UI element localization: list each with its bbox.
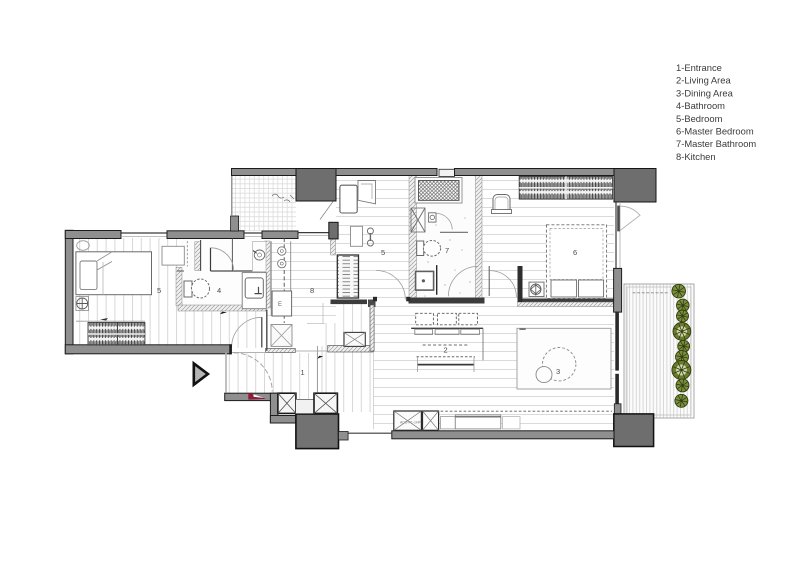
svg-text:2: 2 bbox=[444, 346, 448, 355]
svg-text:8-Kitchen: 8-Kitchen bbox=[676, 151, 716, 162]
svg-text:ACU-P1-1HP: ACU-P1-1HP bbox=[400, 421, 421, 425]
svg-text:5-Bedroom: 5-Bedroom bbox=[676, 113, 723, 124]
svg-text:1-Entrance: 1-Entrance bbox=[676, 62, 722, 73]
svg-text:8: 8 bbox=[310, 286, 314, 295]
svg-text:1: 1 bbox=[301, 368, 305, 377]
svg-text:5: 5 bbox=[157, 286, 161, 295]
svg-text:7-Master Bathroom: 7-Master Bathroom bbox=[676, 138, 756, 149]
svg-text:4: 4 bbox=[217, 286, 221, 295]
svg-text:5: 5 bbox=[381, 248, 385, 257]
svg-text:2-Living Area: 2-Living Area bbox=[676, 75, 732, 86]
svg-text:3-Dining Area: 3-Dining Area bbox=[676, 87, 734, 98]
svg-text:6-Master Bedroom: 6-Master Bedroom bbox=[676, 126, 754, 137]
svg-text:E: E bbox=[278, 302, 282, 308]
svg-text:4-Bathroom: 4-Bathroom bbox=[676, 100, 725, 111]
svg-text:6: 6 bbox=[573, 248, 577, 257]
svg-text:3: 3 bbox=[556, 367, 560, 376]
svg-text:7: 7 bbox=[445, 246, 449, 255]
